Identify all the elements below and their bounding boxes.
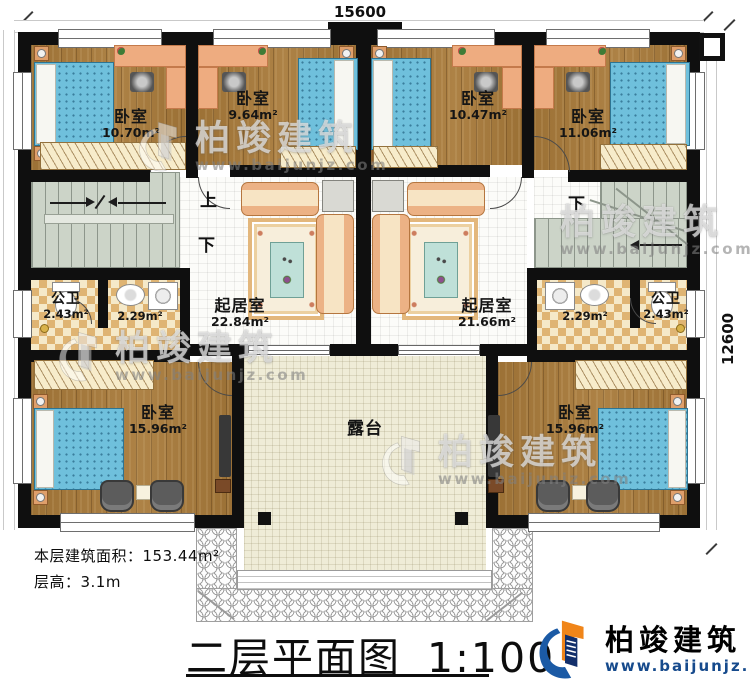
room-label-living-left: 起居室 22.84m² (195, 297, 285, 329)
room-label-bedroom-bottom-right: 卧室 15.96m² (530, 404, 620, 436)
room-name: 卧室 (113, 404, 203, 422)
window-right-br (686, 398, 705, 484)
room-name: 卧室 (543, 108, 633, 126)
stair-down-label-right: 下 (568, 190, 585, 215)
dimension-tick (705, 543, 717, 555)
floor-plan-sheet: 15600 12600 (0, 0, 750, 690)
terrace-column (455, 512, 468, 525)
computer-monitor (130, 72, 154, 92)
room-area: 21.66m² (442, 315, 532, 329)
coffee-table (270, 242, 304, 298)
room-label-living-right: 起居室 21.66m² (442, 297, 532, 329)
stair-up-label: 上 (200, 186, 217, 211)
note-floor-area: 本层建筑面积：153.44m² (34, 545, 220, 566)
wall-living-left-terrace (330, 344, 356, 356)
stair-arrow-line (118, 202, 166, 204)
wall-bl-bottom (195, 515, 232, 528)
tv-cabinet (488, 479, 504, 493)
stair-landing-rail (44, 214, 174, 224)
wall-terrace-left (232, 356, 244, 528)
wall-living-left-terrace (180, 344, 248, 356)
note-floor-height: 层高：3.1m (34, 571, 121, 592)
terrace-steps (237, 570, 492, 590)
desk-return (534, 67, 554, 109)
window-bottom-bl (60, 513, 195, 532)
wardrobe (34, 360, 154, 390)
room-area: 2.29m² (108, 310, 172, 323)
nightstand (670, 490, 685, 505)
chimney (699, 33, 725, 61)
stair-arrow-icon (86, 197, 95, 207)
room-area: 10.47m² (433, 108, 523, 122)
tv-panel (488, 415, 500, 477)
wardrobe (575, 360, 687, 390)
stair-arrow-line (50, 202, 86, 204)
washing-machine (148, 282, 178, 310)
terrace-floor (244, 356, 486, 572)
window-left-bath (13, 290, 32, 338)
room-area: 2.29m² (553, 310, 617, 323)
wardrobe (40, 142, 186, 170)
plant-icon (598, 47, 606, 55)
nightstand (671, 46, 686, 61)
armchair (586, 480, 620, 512)
plant-icon (458, 47, 466, 55)
wall-br1-br2 (186, 32, 198, 178)
bed-pillow (668, 410, 686, 488)
room-area: 9.64m² (208, 108, 298, 122)
wardrobe (280, 146, 356, 168)
room-name: 公卫 (36, 292, 96, 308)
plant-icon (258, 47, 266, 55)
room-name: 露台 (335, 420, 395, 439)
room-name: 卧室 (208, 90, 298, 108)
wall-center-divider (356, 32, 371, 356)
dimension-tick (723, 19, 735, 31)
window-left-bl (13, 398, 32, 484)
room-area: 15.96m² (113, 422, 203, 436)
roof-scale-bottom (196, 588, 533, 622)
floor-drain (676, 324, 685, 333)
room-area: 2.43m² (636, 308, 696, 321)
room-label-bedroom-top-left: 卧室 10.70m² (86, 108, 176, 140)
wall-stair-right-bottom (534, 268, 700, 280)
wall-living-right-terrace (480, 344, 527, 356)
window-bottom-br (528, 513, 660, 532)
dimension-right: 12600 (719, 309, 737, 369)
room-label-bath-right: 公卫 2.43m² (636, 292, 696, 321)
wall-living-right-terrace (371, 344, 398, 356)
window-left-br1 (13, 72, 32, 150)
wall-bl-bottom (18, 515, 60, 528)
wardrobe (373, 146, 438, 168)
armchair (150, 480, 184, 512)
room-area: 11.06m² (543, 126, 633, 140)
dimension-top: 15600 (320, 3, 400, 21)
room-label-bedroom-top-mid-right: 卧室 10.47m² (433, 90, 523, 122)
coffee-table (424, 242, 458, 298)
bed-pillow (36, 64, 56, 144)
wall-bath-divider-left (98, 278, 108, 328)
desk-return (166, 67, 186, 109)
bed-pillow (666, 64, 686, 144)
floor-drain (40, 324, 49, 333)
plant-icon (117, 47, 125, 55)
wall-br-bottom (486, 515, 528, 528)
room-area: 10.70m² (86, 126, 176, 140)
side-table (372, 180, 404, 212)
sofa-three-seat (316, 214, 354, 314)
wash-basin (580, 284, 609, 306)
armchair (536, 480, 570, 512)
wash-basin (116, 284, 145, 306)
room-label-wash-left: 2.29m² (108, 310, 172, 323)
nightstand (34, 46, 49, 61)
tv-cabinet (215, 479, 231, 493)
bed-pillow (373, 60, 393, 148)
desk (114, 45, 186, 67)
room-label-bedroom-top-right: 卧室 11.06m² (543, 108, 633, 140)
terrace-column (258, 512, 271, 525)
nightstand (33, 490, 48, 505)
title-underline (186, 674, 489, 677)
sofa-three-seat (372, 214, 410, 314)
wardrobe (600, 144, 687, 170)
room-label-wash-right: 2.29m² (553, 310, 617, 323)
desk (534, 45, 606, 67)
tv-panel (219, 415, 231, 477)
terrace-door-right (398, 345, 480, 355)
brand-url: www.baijunjz.com (605, 659, 750, 675)
bed-pillow (36, 410, 54, 488)
wall-br4-bottom (568, 170, 700, 182)
terrace-door-left (248, 345, 330, 355)
stair-arrow-icon (108, 197, 117, 207)
brand-logo-icon (534, 616, 596, 684)
nightstand (33, 394, 48, 409)
brand-name: 柏竣建筑 (605, 625, 750, 657)
nightstand (670, 394, 685, 409)
room-area: 2.43m² (36, 308, 96, 321)
room-label-terrace: 露台 (335, 420, 395, 439)
room-name: 卧室 (86, 108, 176, 126)
wall-br-bottom (660, 515, 700, 528)
room-name: 起居室 (442, 297, 532, 315)
bed-pillow (334, 60, 354, 148)
staircase-right-upper (600, 178, 687, 220)
side-table (322, 180, 354, 212)
brand-block: 柏竣建筑 www.baijunjz.com (534, 616, 750, 684)
room-label-bedroom-top-mid-left: 卧室 9.64m² (208, 90, 298, 122)
stair-arrow-line (640, 244, 682, 246)
small-table (136, 485, 151, 500)
sofa-two-seat (241, 182, 319, 216)
stair-down-label: 下 (198, 231, 215, 256)
washing-machine (545, 282, 575, 310)
room-name: 公卫 (636, 292, 696, 308)
sofa-two-seat (407, 182, 485, 216)
wall-br1-bottom (18, 170, 150, 182)
computer-monitor (566, 72, 590, 92)
wall-br3-br4 (522, 32, 534, 178)
stair-arrow-icon (630, 240, 639, 250)
room-area: 15.96m² (530, 422, 620, 436)
room-area: 22.84m² (195, 315, 285, 329)
small-table (572, 485, 587, 500)
armchair (100, 480, 134, 512)
room-name: 卧室 (433, 90, 523, 108)
roof-eave-right (706, 60, 717, 530)
room-label-bath-left: 公卫 2.43m² (36, 292, 96, 321)
room-name: 起居室 (195, 297, 285, 315)
room-name: 卧室 (530, 404, 620, 422)
room-label-bedroom-bottom-left: 卧室 15.96m² (113, 404, 203, 436)
